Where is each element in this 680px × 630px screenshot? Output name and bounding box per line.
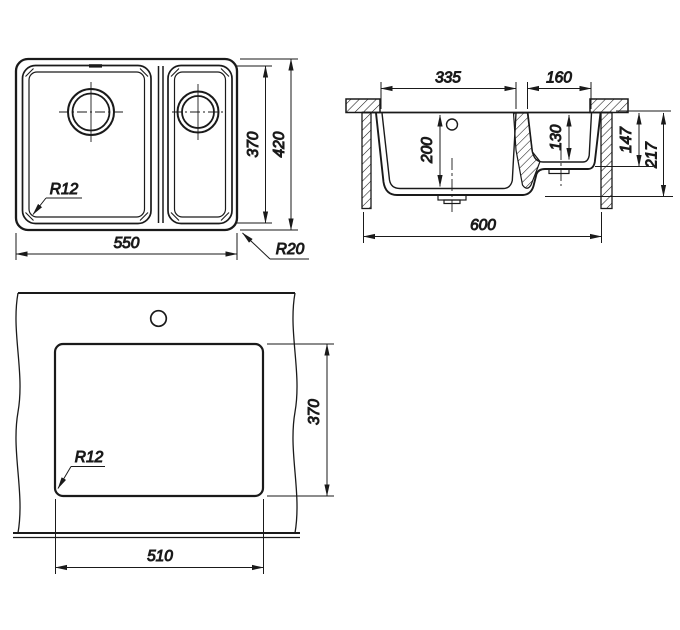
main-drain [59,82,123,142]
dim-label-200: 200 [419,137,436,164]
cabinet-side-right [601,113,612,209]
dim-label-160: 160 [546,70,572,87]
dim-label-510: 510 [147,548,173,565]
countertop-right-section [590,99,628,113]
sink-technical-drawing: 550 370 420 R12 R20 [0,0,680,630]
cutout-opening [55,344,263,496]
dim-label-r12-plan: R12 [50,181,79,198]
dim-label-217: 217 [644,141,661,169]
break-line-right [293,293,297,533]
dim-label-550: 550 [114,235,140,252]
dim-label-r20: R20 [276,241,305,258]
sink-shell-outer [376,113,601,195]
dim-label-r12-cutout: R12 [75,449,104,466]
overflow-hole [447,119,458,130]
dim-label-335: 335 [435,70,461,87]
second-bowl [168,66,232,224]
plan-view: 550 370 420 R12 R20 [16,59,309,260]
dim-label-130: 130 [548,124,565,150]
main-bowl-inner [382,113,516,189]
leader-cutout-radius [58,467,105,489]
dim-cutout-height [267,344,334,496]
countertop-left-section [346,99,380,113]
dim-label-600: 600 [470,217,496,234]
sink-outer-outline [16,59,237,230]
cutout-view: R12 370 510 [13,293,334,574]
main-drain-fitting [438,158,466,213]
dim-label-147: 147 [618,126,635,153]
main-bowl-corner-chamfers [26,69,149,221]
section-view: 335 160 200 130 147 217 600 [346,70,673,244]
main-bowl [23,64,152,223]
faucet-hole [151,311,167,327]
dim-label-370-plan: 370 [245,131,262,157]
second-drain [172,84,224,140]
second-drain-fitting [549,148,569,186]
leader-inner-radius [33,198,82,215]
dim-label-370-cutout: 370 [306,399,323,425]
bowl-divider [159,66,164,223]
cabinet-side-left [362,113,371,209]
overflow-notch [89,64,102,67]
drawing-canvas: 550 370 420 R12 R20 [0,0,680,630]
break-line-left [16,293,20,533]
dim-label-420: 420 [271,131,288,157]
